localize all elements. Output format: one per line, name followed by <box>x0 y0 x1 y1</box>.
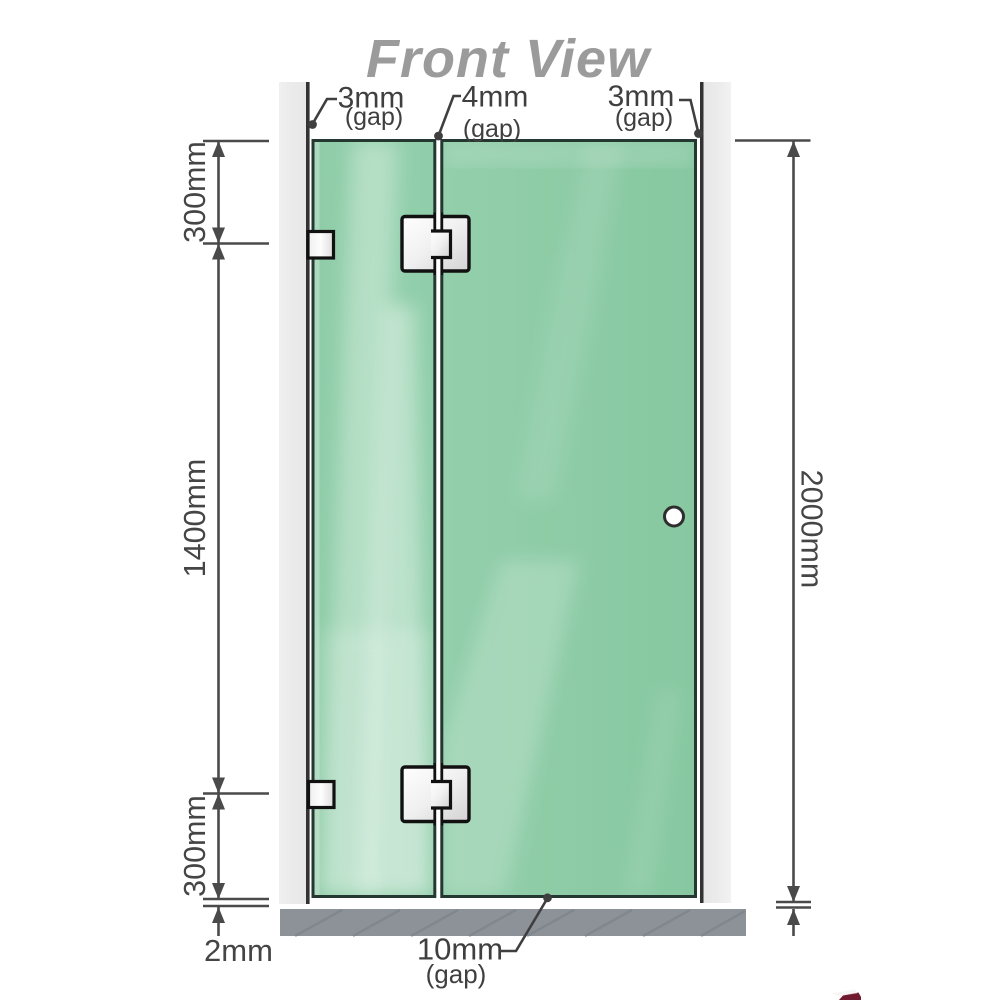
svg-text:(gap): (gap) <box>345 103 403 131</box>
svg-text:2000mm: 2000mm <box>794 470 828 589</box>
svg-text:(gap): (gap) <box>463 115 521 143</box>
svg-text:(gap): (gap) <box>426 959 487 989</box>
svg-text:300mm: 300mm <box>178 141 212 243</box>
svg-text:300mm: 300mm <box>178 795 212 897</box>
svg-text:2mm: 2mm <box>204 933 273 968</box>
svg-text:1400mm: 1400mm <box>178 459 212 578</box>
svg-text:(gap): (gap) <box>615 104 673 132</box>
svg-text:4mm: 4mm <box>462 81 529 114</box>
